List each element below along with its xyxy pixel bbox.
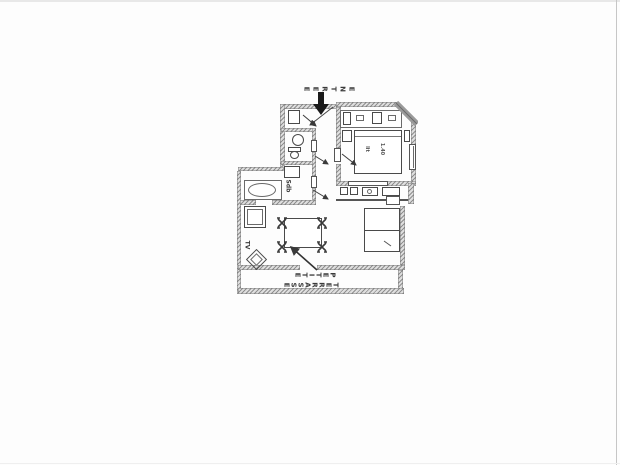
page-edge-top — [0, 0, 620, 2]
bathroom-label: Sdb — [284, 180, 290, 193]
rotated-letter: E — [294, 272, 302, 279]
sofa-mark — [384, 241, 391, 246]
rotated-letter: T — [315, 272, 323, 279]
rotated-letter: E — [325, 282, 333, 289]
door-arrow-wc — [315, 156, 328, 164]
rotated-letter: I — [308, 272, 316, 279]
page-edge-right — [616, 0, 617, 465]
entrance-label: ENTREE — [302, 85, 356, 93]
rotated-letter: E — [348, 86, 356, 93]
rotated-letter: E — [303, 86, 311, 93]
rotated-letter: R — [321, 86, 329, 93]
rotated-letter: T — [301, 272, 309, 279]
page-edge-bottom — [0, 463, 620, 464]
bed-size-label: 1.40 — [379, 143, 385, 155]
rotated-letter: A — [304, 282, 312, 289]
door-arrow-entry — [303, 115, 316, 126]
tv-label: TV — [243, 241, 249, 250]
floor-plan: ENTREE PETITE TERRASSE TV Sdb lit 1.40 — [236, 84, 418, 298]
rotated-letter: N — [339, 86, 347, 93]
plan-annotations — [236, 84, 418, 298]
door-arrow-bathroom — [313, 190, 328, 199]
wall-chamfer-edge — [396, 103, 417, 124]
rotated-letter: T — [330, 86, 338, 93]
rotated-letter: S — [290, 282, 298, 289]
rotated-letter: E — [322, 272, 330, 279]
terrace-door-swing — [291, 247, 317, 270]
terrace-label-line1: PETITE — [294, 271, 336, 279]
rotated-letter: R — [318, 282, 326, 289]
bed-word-label: lit — [364, 146, 370, 152]
rotated-letter: E — [312, 86, 320, 93]
door-arrow-bedroom — [342, 154, 356, 165]
rotated-letter: R — [311, 282, 319, 289]
rotated-letter: P — [329, 272, 337, 279]
rotated-letter: E — [283, 282, 291, 289]
terrace-label-line2: TERRASSE — [283, 281, 339, 289]
rotated-letter: S — [297, 282, 305, 289]
rotated-letter: T — [332, 282, 340, 289]
